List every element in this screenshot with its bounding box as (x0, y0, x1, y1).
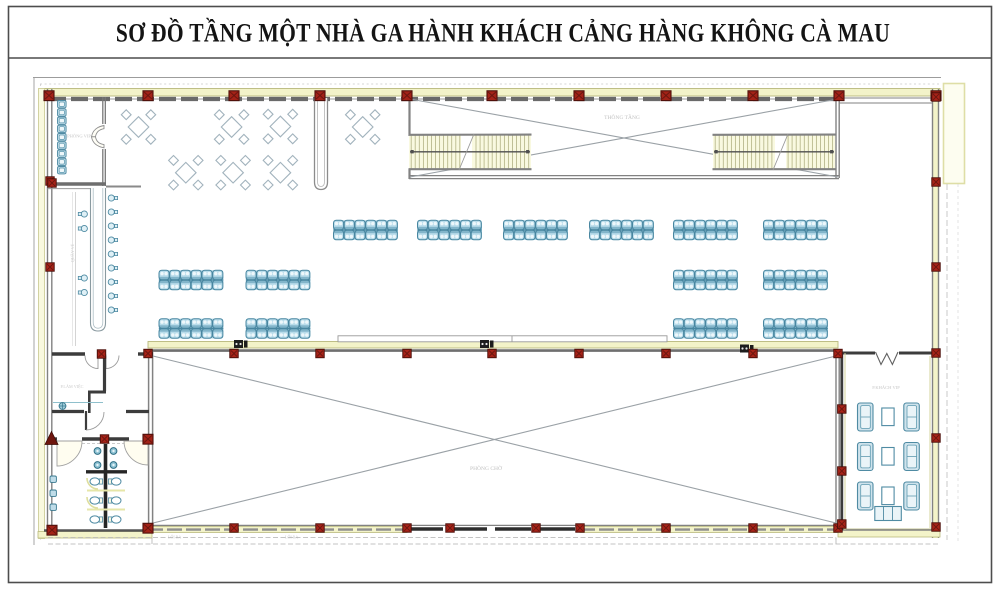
svg-text:SƠ ĐỒ TẦNG MỘT NHÀ GA HÀNH KHÁ: SƠ ĐỒ TẦNG MỘT NHÀ GA HÀNH KHÁCH CẢNG HÀ… (116, 19, 890, 48)
svg-text:LỐI RA: LỐI RA (168, 535, 181, 540)
svg-text:THÔNG TẦNG: THÔNG TẦNG (604, 113, 640, 121)
svg-text:PHÒNG VIP: PHÒNG VIP (67, 134, 91, 139)
svg-text:QUẦY VÉ: QUẦY VÉ (70, 243, 75, 262)
svg-text:PHÒNG CHỜ: PHÒNG CHỜ (470, 464, 503, 472)
svg-text:LỐI RA: LỐI RA (285, 535, 298, 540)
svg-text:P.LÀM VIỆC: P.LÀM VIỆC (61, 384, 84, 389)
svg-text:P.KHÁCH VIP: P.KHÁCH VIP (872, 385, 900, 390)
